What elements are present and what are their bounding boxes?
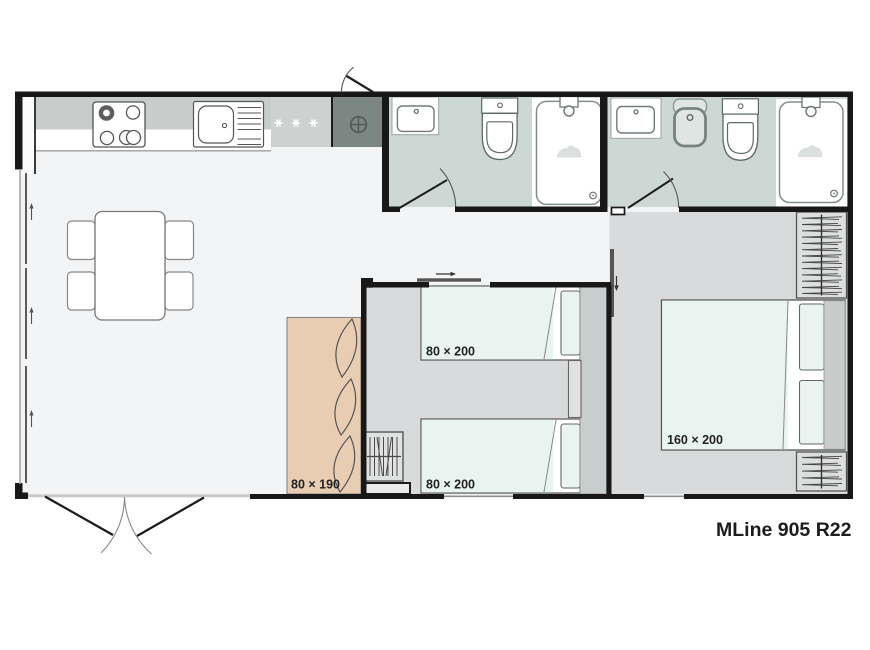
svg-text:MLine 905 R22: MLine 905 R22: [716, 519, 852, 541]
svg-text:80 × 200: 80 × 200: [426, 478, 475, 492]
svg-text:80 × 190: 80 × 190: [291, 478, 340, 492]
svg-text:80 × 200: 80 × 200: [426, 345, 475, 359]
svg-text:160 × 200: 160 × 200: [667, 433, 723, 447]
